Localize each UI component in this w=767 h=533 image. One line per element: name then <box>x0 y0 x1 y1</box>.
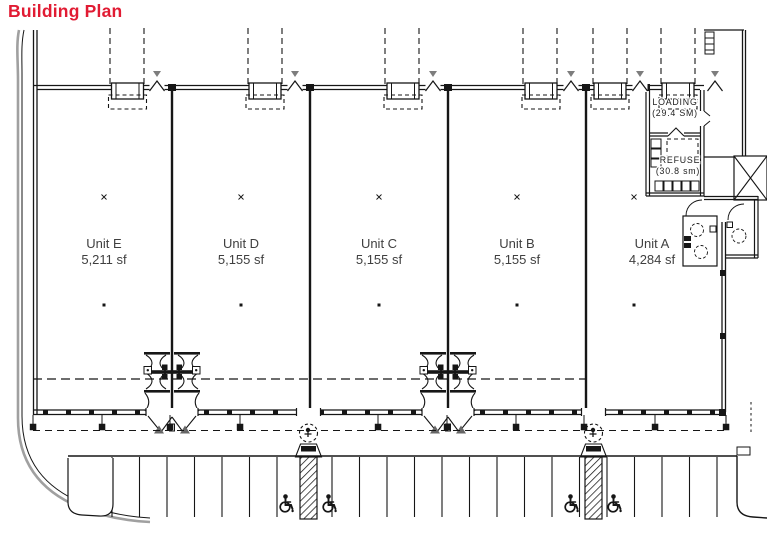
exterior-stair <box>704 156 767 200</box>
unit-area: 5,211 sf <box>81 252 127 267</box>
refuse-room-area: (30.8 sm) <box>656 166 700 176</box>
parking-row <box>68 447 767 518</box>
building-plan-page: Building Plan <box>0 0 767 533</box>
unit-area: 5,155 sf <box>218 252 265 267</box>
unit-label: Unit B <box>499 236 534 251</box>
unit-area: 5,155 sf <box>356 252 403 267</box>
curb-sign <box>737 447 750 455</box>
unit-label: Unit C <box>361 236 397 251</box>
refuse-room <box>651 139 699 191</box>
unit-area: 4,284 sf <box>629 252 676 267</box>
demising-walls <box>172 90 586 412</box>
grid-dashed-lines <box>110 28 695 85</box>
loading-room-label: LOADING <box>652 97 697 107</box>
roof-ladder-icon <box>705 32 714 54</box>
unit-area: 5,155 sf <box>494 252 541 267</box>
canopy-line-and-columns <box>30 415 730 431</box>
unit-label: Unit E <box>86 236 122 251</box>
loading-room-area: (29.4 SM) <box>652 108 698 118</box>
unit-label: Unit A <box>635 236 670 251</box>
refuse-room-label: REFUSE <box>660 155 700 165</box>
restrooms <box>683 196 758 339</box>
curb-island <box>68 458 113 516</box>
column-dot-marks <box>103 304 636 307</box>
page-title: Building Plan <box>8 1 122 22</box>
unit-label: Unit D <box>223 236 259 251</box>
floor-plan-drawing: Unit E 5,211 sf Unit D 5,155 sf Unit C 5… <box>0 0 767 533</box>
curb-right <box>737 456 767 518</box>
